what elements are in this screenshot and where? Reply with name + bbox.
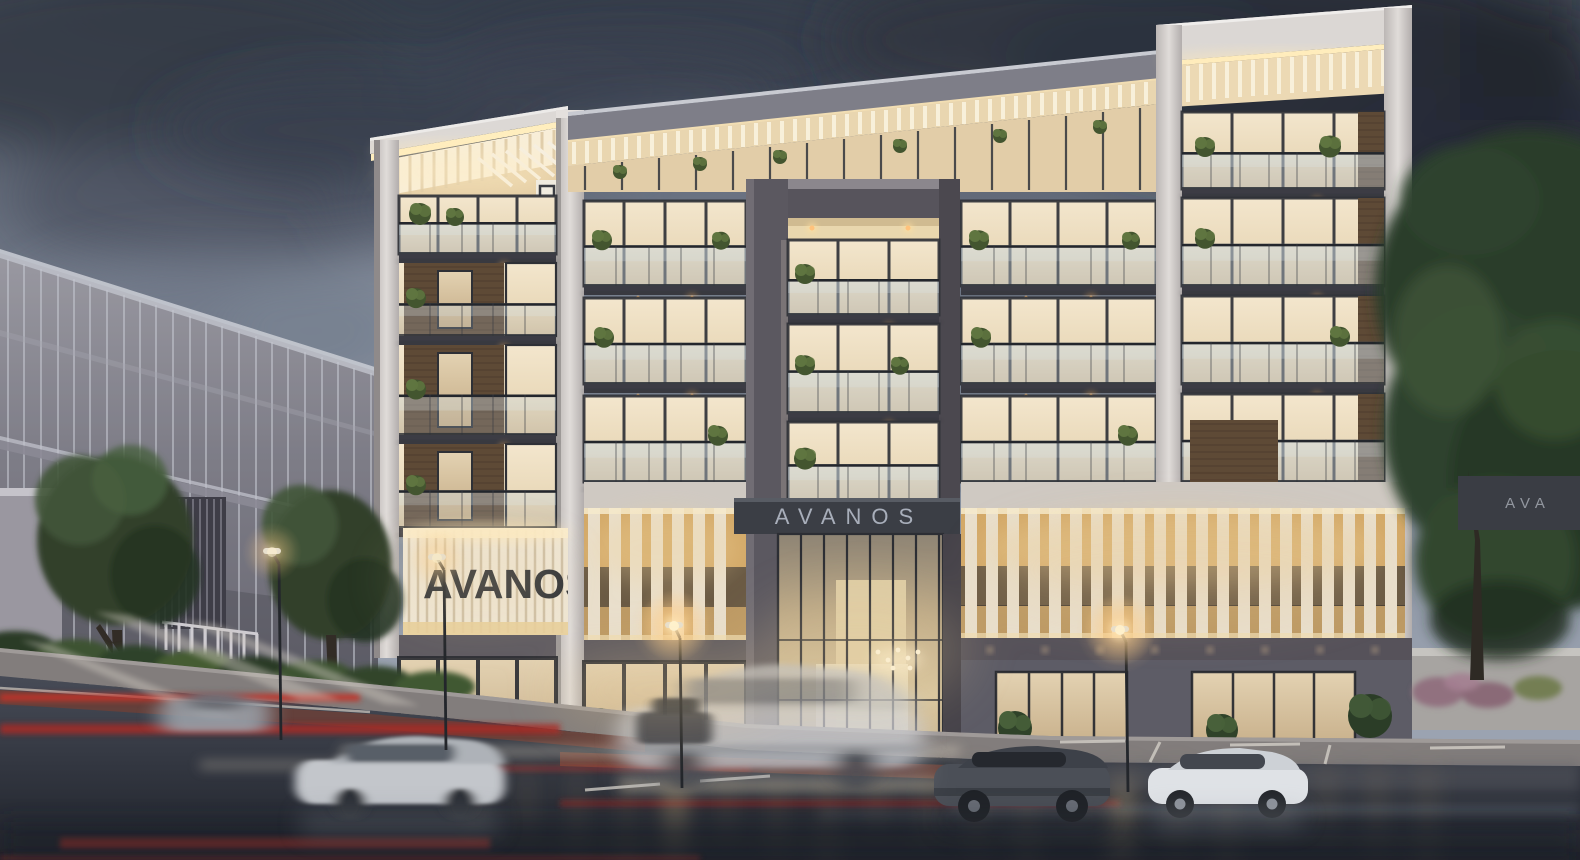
svg-text:AVA: AVA [1505, 495, 1551, 512]
svg-text:AVANOS: AVANOS [775, 504, 923, 529]
